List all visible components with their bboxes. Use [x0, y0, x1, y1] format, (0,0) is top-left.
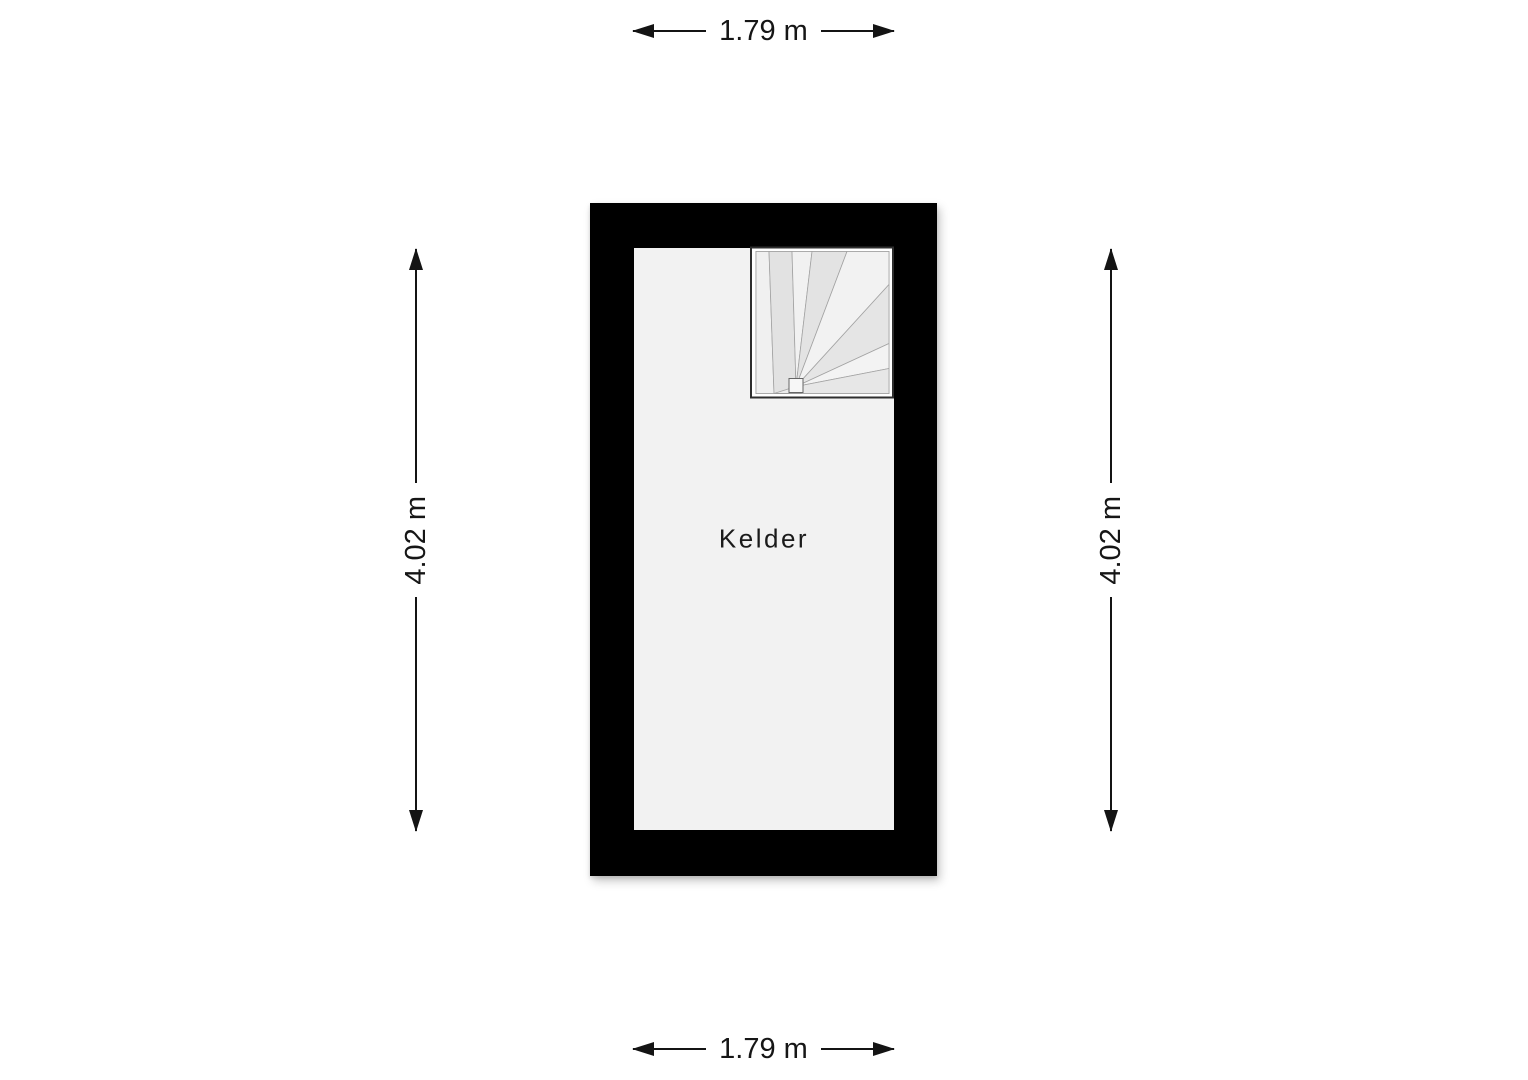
newel-post: [789, 379, 803, 393]
down-arrow-icon: [1110, 597, 1113, 831]
dimension-top-label: 1.79 m: [706, 17, 821, 46]
left-arrow-icon: [633, 1048, 706, 1051]
room-name-label: Kelder: [634, 524, 894, 555]
right-arrow-icon: [821, 30, 894, 33]
dimension-left-label: 4.02 m: [402, 483, 431, 598]
dimension-bottom: 1.79 m: [633, 1031, 894, 1067]
left-arrow-icon: [633, 30, 706, 33]
staircase: [750, 246, 894, 399]
up-arrow-icon: [415, 249, 418, 483]
dimension-bottom-label: 1.79 m: [706, 1035, 821, 1064]
floorplan-page: 1.79 m 4.02 m 4.02 m 1.79 m Kelder: [0, 0, 1528, 1080]
dimension-right-label: 4.02 m: [1097, 483, 1126, 598]
dimension-left: 4.02 m: [398, 249, 434, 831]
floorplan-kelder: Kelder: [590, 203, 937, 876]
up-arrow-icon: [1110, 249, 1113, 483]
dimension-right: 4.02 m: [1093, 249, 1129, 831]
dimension-top: 1.79 m: [633, 13, 894, 49]
down-arrow-icon: [415, 597, 418, 831]
right-arrow-icon: [821, 1048, 894, 1051]
